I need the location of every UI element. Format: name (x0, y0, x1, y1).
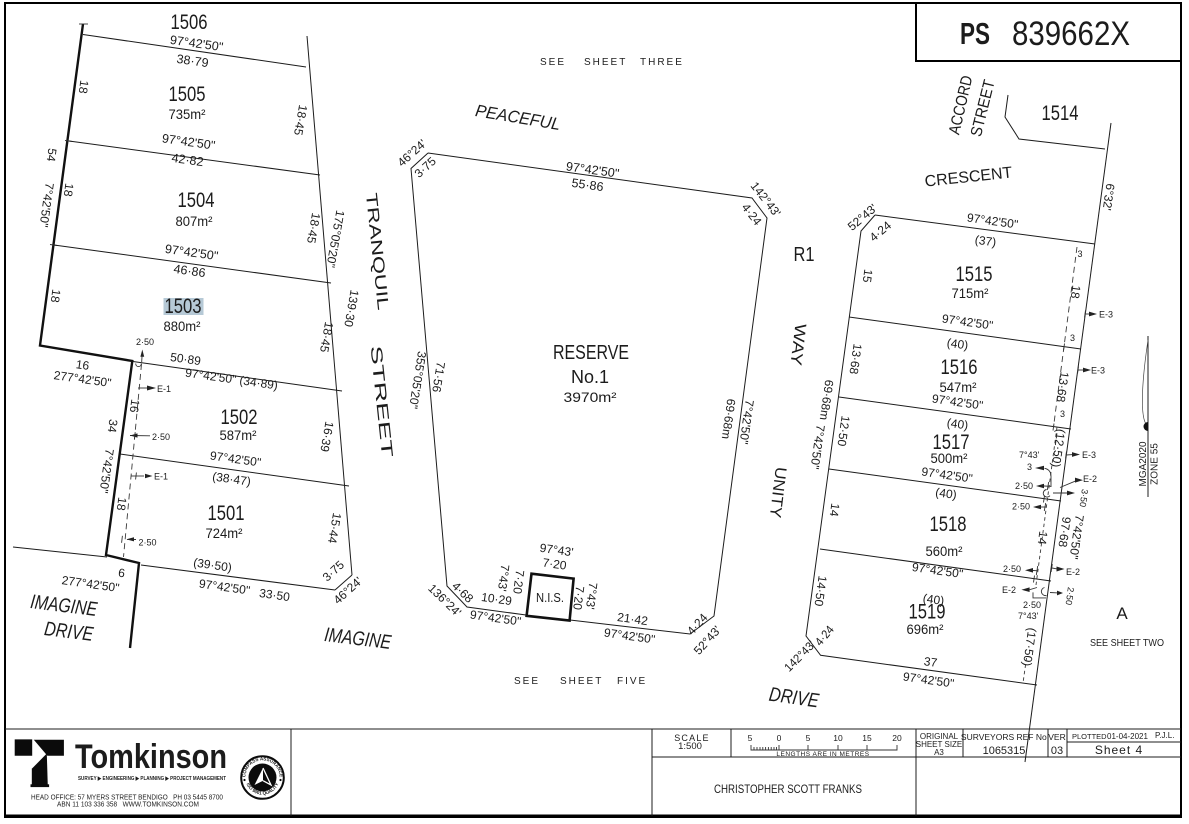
svg-text:ZONE 55: ZONE 55 (1150, 443, 1161, 485)
svg-text:(40): (40) (935, 485, 958, 502)
svg-text:SEE: SEE (540, 57, 566, 68)
svg-text:54: 54 (44, 147, 60, 162)
svg-text:P.J.L.: P.J.L. (1155, 731, 1174, 740)
svg-text:1065315: 1065315 (983, 745, 1026, 757)
svg-text:20: 20 (892, 733, 902, 743)
svg-text:15: 15 (862, 733, 872, 743)
svg-text:SURVEYORS REF No.: SURVEYORS REF No. (961, 732, 1049, 742)
svg-text:3: 3 (1060, 409, 1065, 419)
svg-text:N.I.S.: N.I.S. (536, 590, 564, 605)
svg-text:1502: 1502 (221, 406, 258, 429)
svg-text:E-2: E-2 (1002, 585, 1016, 595)
svg-text:34: 34 (105, 418, 121, 433)
svg-text:7°43': 7°43' (1019, 450, 1040, 460)
svg-text:ABN 11 103 336 358 WWW.TOMKI: ABN 11 103 336 358 WWW.TOMKINSON.COM (57, 800, 199, 809)
svg-text:14: 14 (827, 502, 843, 517)
svg-text:1506: 1506 (171, 11, 208, 34)
svg-text:A: A (1116, 604, 1128, 623)
svg-text:18: 18 (48, 288, 64, 303)
svg-text:SHEET: SHEET (560, 676, 603, 687)
svg-text:FIVE: FIVE (617, 676, 647, 687)
svg-text:16: 16 (127, 398, 143, 413)
svg-text:(37): (37) (974, 233, 997, 250)
svg-text:735m²: 735m² (169, 106, 206, 122)
svg-text:SEE: SEE (514, 676, 540, 687)
svg-text:E-2: E-2 (1083, 474, 1097, 484)
svg-text:R1: R1 (794, 244, 815, 266)
svg-text:CHRISTOPHER SCOTT FRANKS: CHRISTOPHER SCOTT FRANKS (714, 782, 862, 796)
svg-text:3: 3 (1078, 249, 1083, 259)
svg-text:VER: VER (1048, 732, 1065, 742)
svg-text:839662X: 839662X (1012, 15, 1130, 53)
svg-text:10: 10 (833, 733, 843, 743)
svg-text:18: 18 (61, 182, 77, 197)
svg-text:SURVEY ▶ ENGINEERING ▶ PLANNIN: SURVEY ▶ ENGINEERING ▶ PLANNING ▶ PROJEC… (78, 775, 226, 782)
svg-text:587m²: 587m² (220, 427, 257, 443)
svg-text:PS: PS (960, 16, 990, 51)
svg-text:3: 3 (1070, 333, 1075, 343)
svg-text:3: 3 (1027, 462, 1032, 472)
svg-text:2·50: 2·50 (152, 432, 170, 442)
svg-text:724m²: 724m² (206, 525, 243, 541)
svg-text:LENGTHS ARE IN METRES: LENGTHS ARE IN METRES (776, 751, 869, 758)
svg-text:1501: 1501 (208, 502, 245, 525)
svg-text:1504: 1504 (178, 189, 215, 212)
svg-text:2·50: 2·50 (1012, 502, 1030, 512)
svg-text:7°43': 7°43' (1018, 611, 1039, 621)
svg-text:500m²: 500m² (931, 450, 968, 466)
svg-text:Sheet 4: Sheet 4 (1095, 743, 1143, 757)
svg-text:1518: 1518 (930, 513, 967, 536)
svg-text:1514: 1514 (1042, 102, 1079, 125)
svg-text:2·50: 2·50 (1015, 481, 1033, 491)
svg-text:1515: 1515 (956, 263, 993, 286)
svg-text:18: 18 (76, 79, 92, 94)
svg-text:(40): (40) (946, 336, 969, 353)
svg-text:5: 5 (806, 733, 811, 743)
svg-text:SEE SHEET TWO: SEE SHEET TWO (1090, 638, 1164, 649)
svg-text:0: 0 (777, 733, 782, 743)
svg-text:No.1: No.1 (571, 367, 609, 387)
svg-text:15: 15 (860, 268, 876, 283)
svg-text:MGA2020: MGA2020 (1138, 441, 1149, 486)
svg-text:03: 03 (1051, 745, 1063, 757)
svg-text:7·20: 7·20 (510, 569, 527, 595)
svg-text:SHEET: SHEET (584, 57, 627, 68)
svg-text:E-2: E-2 (1066, 567, 1080, 577)
svg-text:715m²: 715m² (952, 285, 989, 301)
svg-text:E-3: E-3 (1082, 450, 1096, 460)
svg-text:RESERVE: RESERVE (553, 342, 629, 364)
svg-text:2·50: 2·50 (139, 538, 157, 548)
svg-text:5: 5 (748, 733, 753, 743)
svg-text:E-3: E-3 (1091, 366, 1105, 376)
svg-text:2·50: 2·50 (136, 337, 154, 347)
svg-text:37: 37 (923, 654, 938, 670)
svg-text:Tomkinson: Tomkinson (75, 738, 227, 776)
svg-text:PLOTTED: PLOTTED (1072, 732, 1107, 741)
svg-text:560m²: 560m² (926, 543, 963, 559)
svg-text:1503: 1503 (165, 295, 202, 318)
svg-text:1:500: 1:500 (678, 741, 702, 752)
svg-text:807m²: 807m² (176, 213, 213, 229)
svg-text:18: 18 (1068, 284, 1084, 299)
svg-text:14: 14 (1035, 530, 1051, 545)
svg-text:696m²: 696m² (907, 621, 944, 637)
svg-text:A3: A3 (934, 748, 944, 757)
svg-text:3970m²: 3970m² (564, 389, 617, 405)
svg-text:01-04-2021: 01-04-2021 (1107, 732, 1148, 741)
svg-text:THREE: THREE (640, 57, 684, 68)
svg-text:1516: 1516 (941, 356, 978, 379)
svg-text:880m²: 880m² (164, 318, 201, 334)
svg-text:1505: 1505 (169, 83, 206, 106)
svg-text:2·50: 2·50 (1023, 600, 1041, 610)
svg-text:E-3: E-3 (1099, 310, 1113, 320)
svg-text:18: 18 (114, 496, 130, 511)
svg-text:(40): (40) (946, 416, 969, 433)
svg-text:E-1: E-1 (154, 472, 168, 482)
svg-text:E-1: E-1 (157, 384, 171, 394)
svg-text:2·50: 2·50 (1003, 564, 1021, 574)
